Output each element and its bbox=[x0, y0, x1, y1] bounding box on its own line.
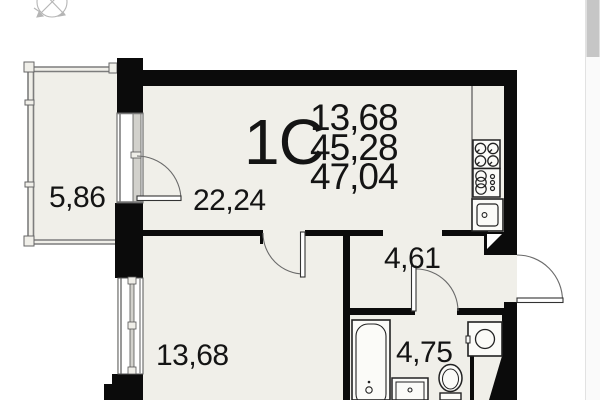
kitchen-sink-icon bbox=[472, 199, 503, 231]
living-area-label: 22,24 bbox=[193, 184, 266, 217]
oven-icon bbox=[473, 169, 500, 198]
balcony-interior bbox=[28, 67, 117, 244]
compass-icon bbox=[34, 0, 67, 17]
toilet-icon bbox=[439, 365, 462, 400]
bathtub-icon bbox=[352, 320, 390, 400]
entrance-door bbox=[517, 255, 563, 303]
floor-plan-drawing: 1С 13,68 45,28 47,04 5,86 22,24 13,68 4,… bbox=[0, 0, 600, 400]
balcony-window bbox=[117, 113, 143, 203]
scrollbar-thumb[interactable] bbox=[587, 0, 600, 57]
balcony-area-label: 5,86 bbox=[49, 181, 105, 214]
hallway-area-label: 4,61 bbox=[384, 242, 440, 275]
bathroom-area-label: 4,75 bbox=[396, 336, 452, 369]
washing-machine-icon bbox=[466, 322, 502, 356]
bedroom-area-label: 13,68 bbox=[156, 339, 229, 372]
stove-icon bbox=[473, 140, 500, 169]
scrollbar[interactable] bbox=[586, 0, 600, 400]
scrollbar-track[interactable] bbox=[586, 0, 600, 400]
floor-plan-page: 1С 13,68 45,28 47,04 5,86 22,24 13,68 4,… bbox=[0, 0, 600, 400]
bedroom-window bbox=[118, 277, 143, 374]
washbasin-icon bbox=[392, 378, 428, 400]
area-summary-line-3: 47,04 bbox=[310, 156, 398, 197]
